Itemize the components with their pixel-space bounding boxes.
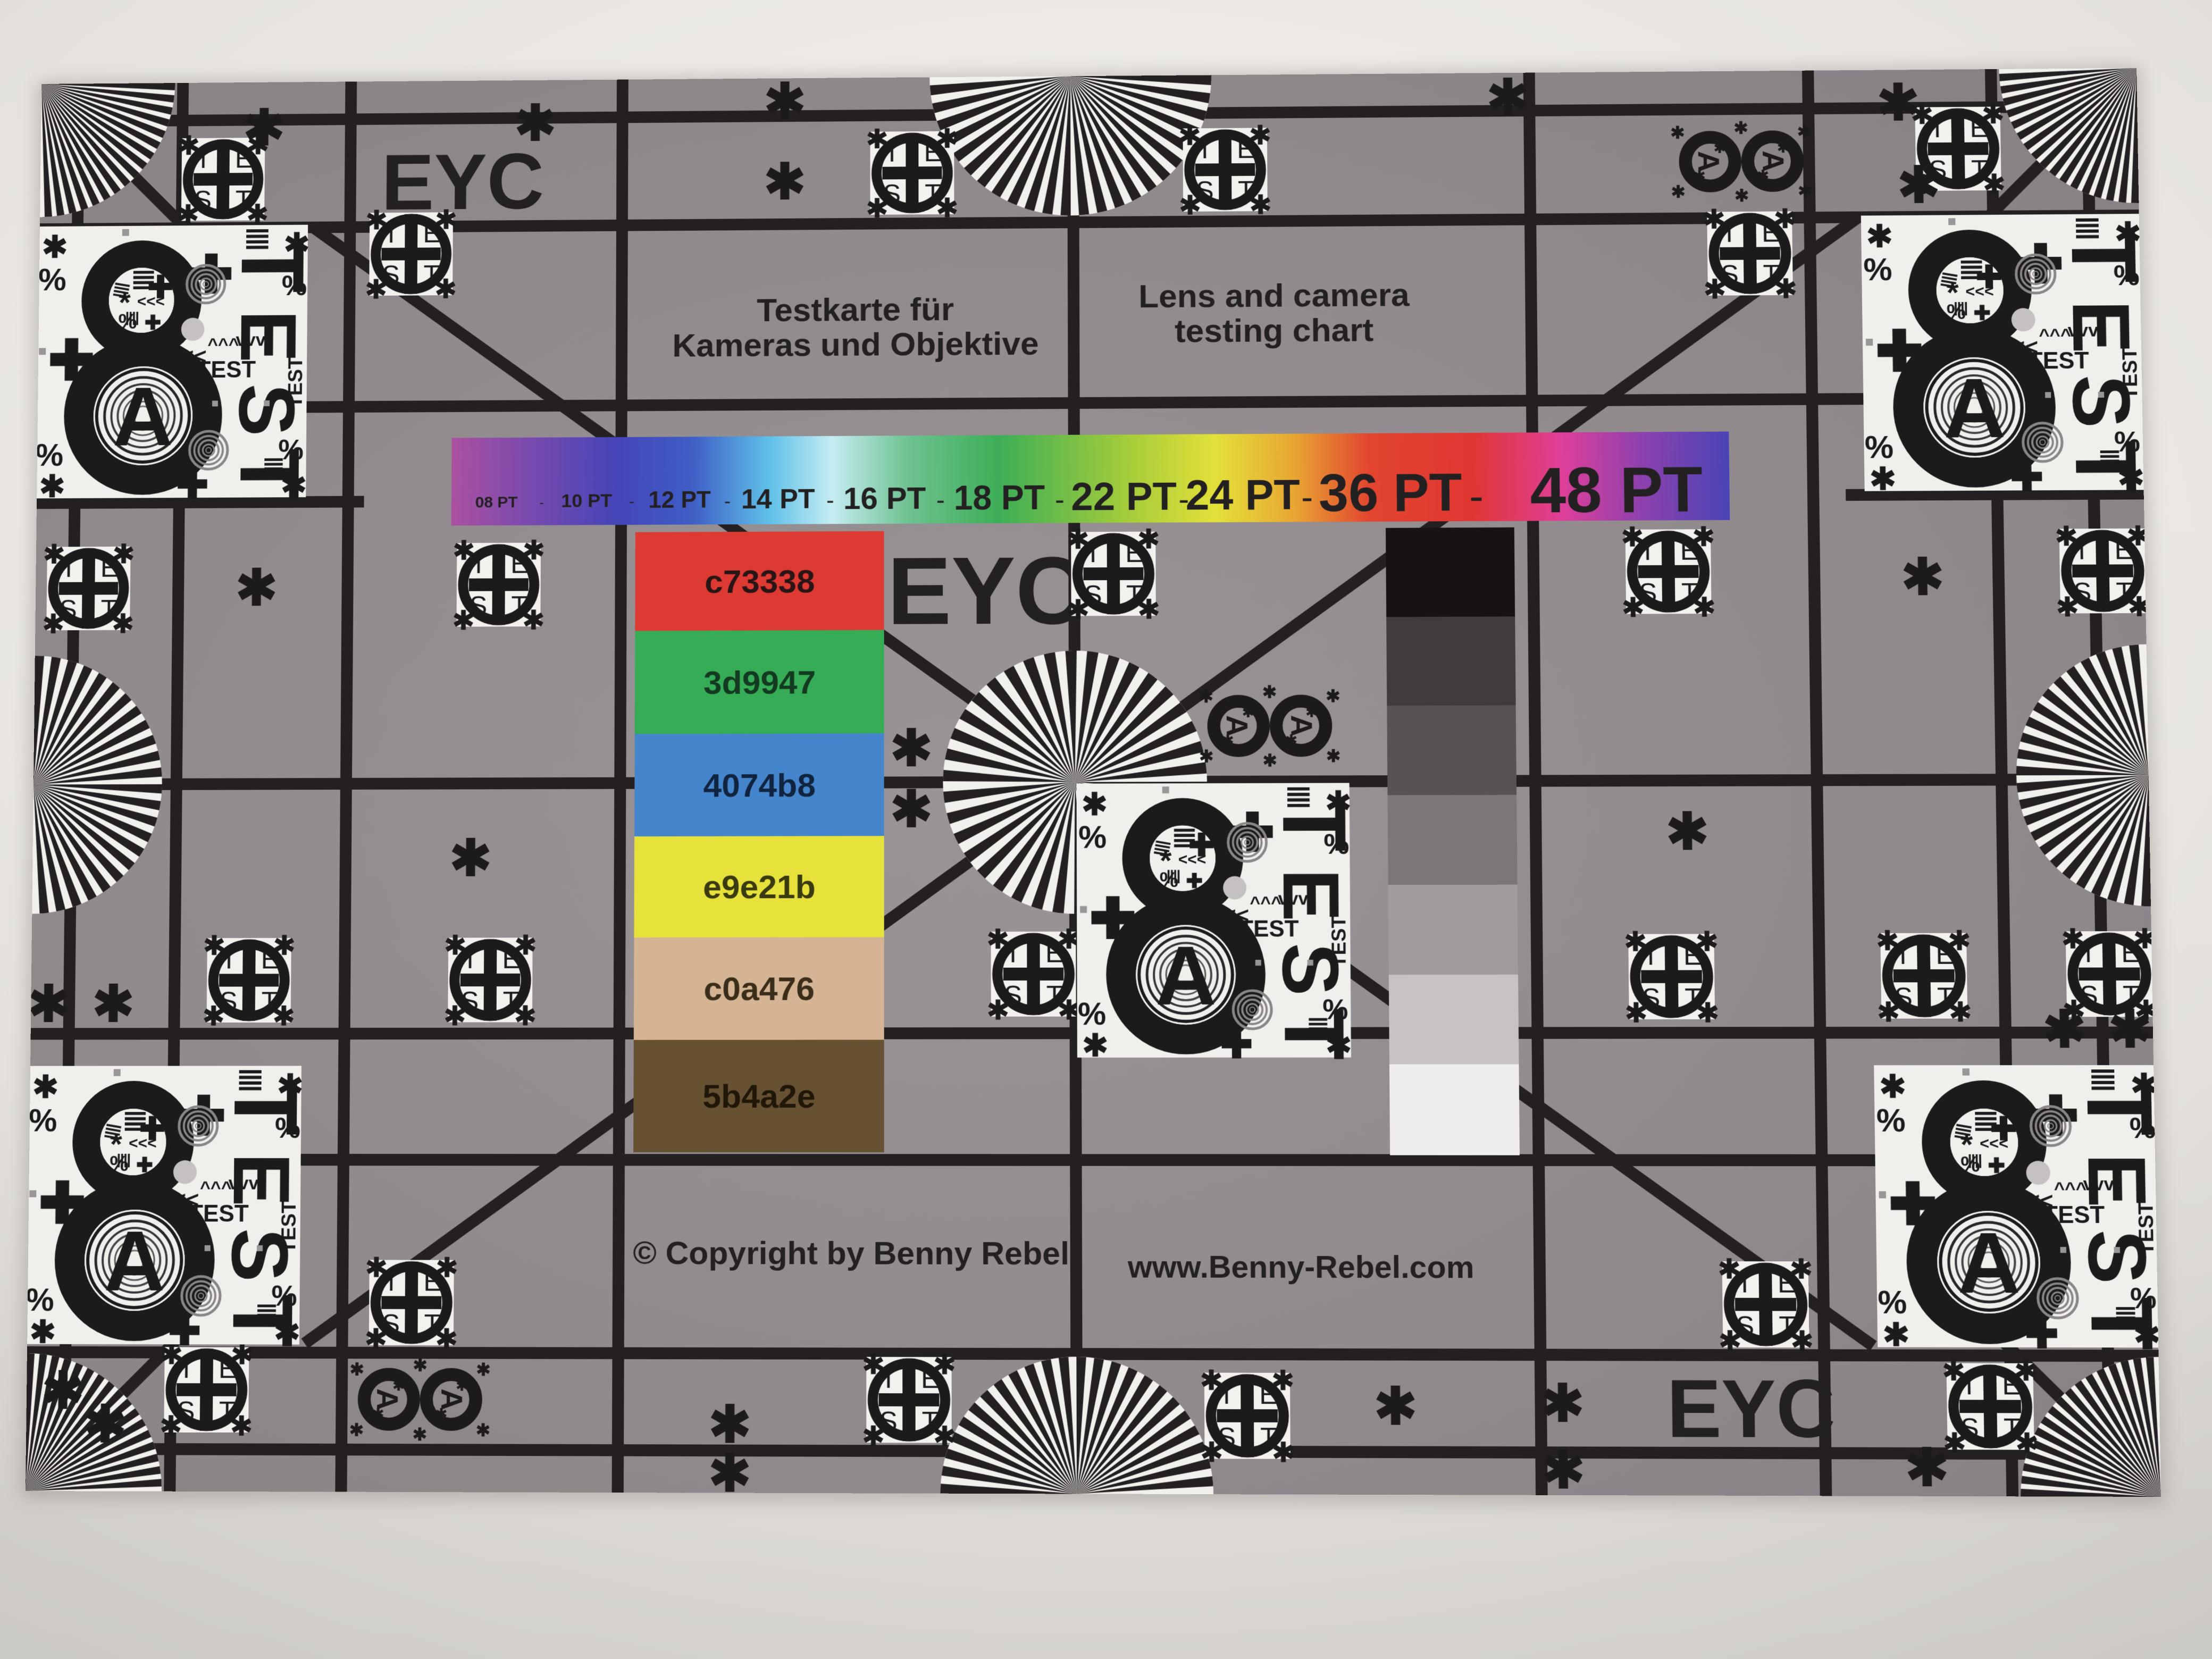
svg-text:-: - — [724, 491, 731, 512]
svg-text:22 PT: 22 PT — [1071, 474, 1177, 518]
svg-text:12 PT: 12 PT — [648, 487, 710, 513]
svg-text:10 PT: 10 PT — [561, 490, 612, 512]
svg-text:08 PT: 08 PT — [475, 493, 518, 512]
svg-text:4074b8: 4074b8 — [703, 767, 816, 804]
svg-text:Lens and camera: Lens and camera — [1138, 276, 1410, 314]
svg-text:36 PT: 36 PT — [1319, 462, 1462, 522]
svg-text:5b4a2e: 5b4a2e — [702, 1077, 815, 1115]
svg-text:16 PT: 16 PT — [843, 481, 926, 516]
svg-text:-: - — [826, 488, 834, 514]
svg-text:© Copyright by Benny Rebel: © Copyright by Benny Rebel — [633, 1235, 1069, 1271]
svg-text:-: - — [936, 485, 945, 514]
svg-text:-: - — [629, 493, 634, 511]
svg-text:testing chart: testing chart — [1175, 312, 1374, 349]
svg-text:Testkarte für: Testkarte für — [757, 290, 954, 328]
svg-text:EYC: EYC — [1666, 1363, 1836, 1455]
svg-text:-: - — [1469, 472, 1484, 520]
svg-text:-: - — [1055, 484, 1065, 516]
svg-text:EYC: EYC — [887, 537, 1085, 644]
svg-text:-: - — [1301, 477, 1313, 516]
svg-text:14 PT: 14 PT — [741, 483, 815, 514]
svg-text:c0a476: c0a476 — [703, 970, 815, 1007]
svg-text:Kameras und Objektive: Kameras und Objektive — [672, 325, 1038, 364]
svg-text:3d9947: 3d9947 — [703, 664, 816, 701]
svg-text:c73338: c73338 — [705, 563, 815, 600]
svg-text:www.Benny-Rebel.com: www.Benny-Rebel.com — [1127, 1250, 1474, 1285]
svg-text:18 PT: 18 PT — [954, 479, 1045, 517]
svg-text:-: - — [539, 496, 544, 510]
svg-text:e9e21b: e9e21b — [703, 868, 816, 906]
svg-text:24 PT: 24 PT — [1185, 471, 1300, 519]
svg-text:48 PT: 48 PT — [1530, 454, 1703, 526]
